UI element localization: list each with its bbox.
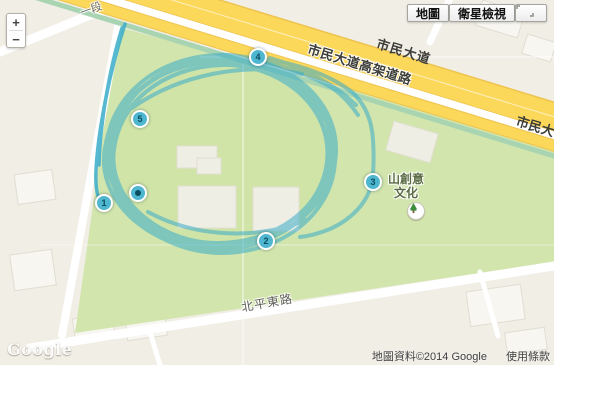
poi-label-huashan-creative-park: 山創意 文化 (383, 172, 429, 200)
km-marker-2[interactable]: 2 (257, 232, 275, 250)
satellite-view-button[interactable]: 衛星檢視 (449, 4, 515, 22)
attribution-text: 地圖資料©2014 Google (372, 351, 487, 363)
map-attribution: 地圖資料©2014 Google 使用條款 (372, 348, 550, 364)
zoom-out-button[interactable]: − (7, 31, 25, 47)
google-logo[interactable]: Google (7, 340, 72, 359)
zoom-control: + − (6, 13, 26, 48)
resize-corners-icon (516, 5, 534, 17)
km-marker-1[interactable]: 1 (95, 194, 113, 212)
terms-of-use-link[interactable]: 使用條款 (506, 351, 550, 363)
start-position-marker (129, 184, 147, 202)
km-marker-5[interactable]: 5 (131, 110, 149, 128)
park-poi-button[interactable] (407, 202, 425, 220)
poi-label-line2: 文化 (383, 186, 429, 200)
map-view-button[interactable]: 地圖 (407, 4, 449, 22)
tree-icon (408, 203, 419, 214)
poi-label-line1: 山創意 (383, 172, 429, 186)
km-marker-3[interactable]: 3 (364, 173, 382, 191)
zoom-in-button[interactable]: + (7, 14, 25, 30)
map-canvas[interactable]: 一段 市民大道 市民大道高架道路 市民大 北平東路 山創意 文化 1 2 3 4… (0, 0, 554, 365)
km-marker-4[interactable]: 4 (249, 48, 267, 66)
map-graphics (0, 0, 554, 365)
resize-map-button[interactable] (515, 4, 547, 22)
page: 一段 市民大道 市民大道高架道路 市民大 北平東路 山創意 文化 1 2 3 4… (0, 0, 600, 406)
